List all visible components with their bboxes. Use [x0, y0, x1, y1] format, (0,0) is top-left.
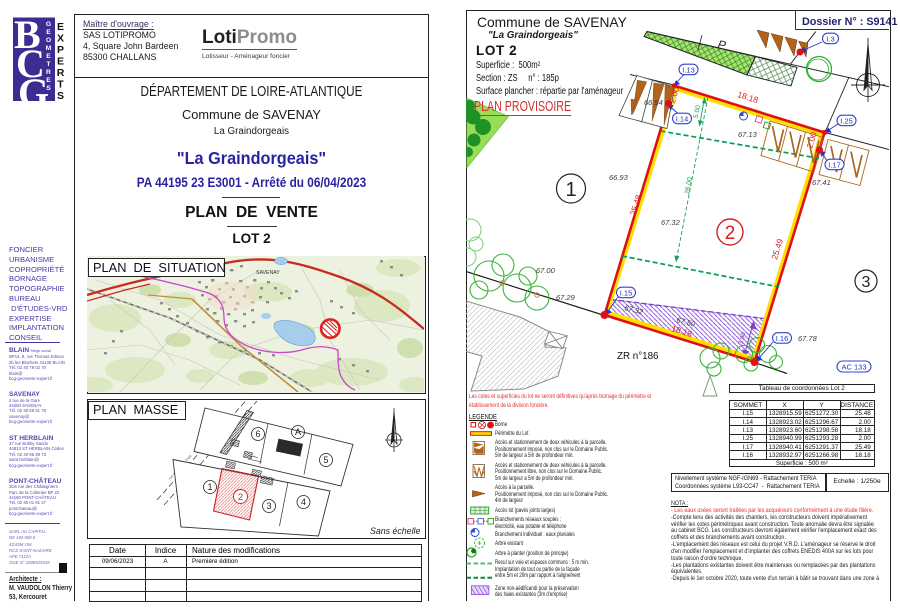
- svg-text:I.13: I.13: [682, 66, 695, 75]
- svg-text:3: 3: [862, 274, 871, 291]
- svg-text:R: R: [57, 67, 65, 79]
- svg-text:5: 5: [323, 455, 328, 465]
- svg-text:I.15: I.15: [620, 289, 633, 298]
- svg-text:4: 4: [301, 497, 306, 507]
- svg-text:26.00: 26.00: [684, 177, 694, 195]
- svg-text:1: 1: [565, 179, 576, 201]
- svg-text:E: E: [46, 53, 51, 60]
- svg-text:E: E: [46, 77, 51, 84]
- svg-text:R: R: [46, 69, 51, 76]
- svg-text:18.18: 18.18: [736, 89, 760, 105]
- svg-text:1: 1: [207, 482, 212, 492]
- svg-text:I.17: I.17: [828, 161, 841, 170]
- svg-text:2: 2: [725, 223, 736, 244]
- svg-text:M: M: [46, 45, 52, 52]
- svg-text:E: E: [46, 29, 51, 36]
- svg-text:67.78: 67.78: [798, 334, 818, 343]
- svg-text:T: T: [57, 79, 64, 91]
- svg-text:G: G: [18, 70, 49, 110]
- svg-text:ZR n°186: ZR n°186: [617, 351, 659, 362]
- svg-text:67.00: 67.00: [536, 266, 556, 275]
- svg-text:66.94: 66.94: [644, 98, 663, 107]
- svg-text:S: S: [46, 85, 51, 92]
- svg-text:3: 3: [266, 501, 271, 511]
- svg-text:S: S: [57, 90, 64, 102]
- svg-text:SAVENAY: SAVENAY: [256, 270, 280, 276]
- svg-text:A: A: [295, 427, 301, 437]
- svg-text:67.29: 67.29: [556, 293, 576, 302]
- svg-text:E: E: [57, 21, 64, 33]
- svg-text:E: E: [57, 56, 64, 68]
- svg-text:67.32: 67.32: [661, 218, 681, 227]
- svg-text:O: O: [46, 37, 51, 44]
- svg-text:67.13: 67.13: [738, 130, 758, 139]
- svg-text:P: P: [57, 44, 64, 56]
- svg-text:AC 133: AC 133: [841, 363, 866, 372]
- svg-text:I.25: I.25: [840, 117, 853, 126]
- svg-text:67.41: 67.41: [812, 178, 831, 187]
- svg-text:6: 6: [255, 429, 260, 439]
- svg-text:I.3: I.3: [826, 35, 834, 44]
- svg-text:I.14: I.14: [676, 115, 689, 124]
- svg-text:X: X: [57, 33, 64, 45]
- svg-text:2: 2: [238, 492, 243, 503]
- svg-text:66.93: 66.93: [609, 173, 629, 182]
- svg-text:I.16: I.16: [776, 334, 789, 343]
- svg-text:G: G: [46, 21, 51, 28]
